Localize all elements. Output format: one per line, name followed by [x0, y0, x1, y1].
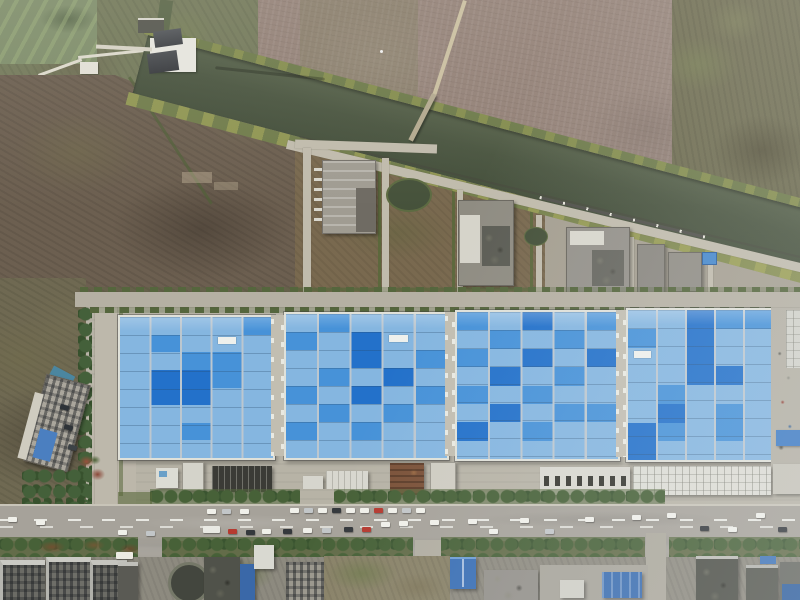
dark-block: [696, 556, 738, 600]
car: [430, 520, 439, 525]
roof-panel: [181, 352, 212, 370]
roof-panel: [383, 368, 415, 386]
algae-pond: [0, 0, 97, 64]
rooftop-unit: [634, 351, 651, 359]
building-c-equipment: [592, 250, 624, 286]
car: [362, 527, 371, 532]
roof-panel: [657, 423, 686, 442]
parked-car: [416, 508, 425, 513]
plot-path: [303, 148, 311, 295]
utility-pond-small: [524, 227, 548, 246]
apartment-block: [46, 557, 91, 600]
road-curb: [0, 504, 800, 506]
car: [8, 517, 17, 522]
parked-car: [318, 508, 327, 513]
apartment-tower: [118, 562, 138, 600]
vent-row: [544, 476, 626, 486]
plot-path: [382, 158, 389, 295]
factory-hall-3: [455, 310, 620, 461]
roof-panel: [521, 386, 553, 404]
roof-panel: [715, 310, 744, 329]
roof-panel: [212, 370, 243, 388]
roof-panel: [521, 349, 553, 367]
gray-building: [484, 570, 538, 600]
roof-panel: [686, 310, 715, 329]
parked-car: [332, 508, 341, 513]
car: [303, 528, 312, 533]
parked-car: [64, 424, 74, 431]
roof-panel: [457, 349, 489, 367]
open-lot: [324, 556, 450, 600]
parked-car: [290, 508, 299, 513]
roof-panel: [686, 366, 715, 385]
blue-tank: [702, 252, 717, 265]
car: [667, 513, 676, 518]
field-mark: [182, 172, 212, 183]
car: [146, 531, 155, 536]
parked-car: [360, 508, 369, 513]
car: [632, 515, 641, 520]
driveway-gap: [138, 537, 162, 559]
north-road-hedge: [80, 287, 800, 292]
dark-roof-building: [204, 557, 240, 600]
rooftop-unit: [218, 337, 236, 344]
hall-gap: [445, 312, 455, 456]
roof-panel: [350, 332, 382, 350]
roof-panel: [628, 423, 657, 442]
plot-hedge: [452, 184, 455, 293]
factory-hall-4: [626, 308, 775, 462]
walker-dot: [380, 50, 383, 53]
car: [520, 518, 529, 523]
roof-panel: [657, 385, 686, 404]
roof-panel: [286, 422, 318, 440]
car: [700, 526, 709, 531]
utility-pond: [386, 178, 432, 212]
car: [778, 527, 787, 532]
car: [322, 528, 331, 533]
roof-panel: [686, 348, 715, 367]
car: [118, 530, 127, 535]
factory-north-road: [75, 292, 800, 307]
factory-hall-2: [284, 312, 449, 460]
car: [228, 529, 237, 534]
lane-markings: [0, 526, 800, 528]
bus: [116, 552, 133, 559]
parked-car: [60, 404, 70, 411]
building-c-white-roof: [570, 231, 604, 245]
roof-panel: [715, 366, 744, 385]
treatment-building-a-annex: [356, 188, 376, 232]
east-building: [786, 310, 800, 368]
roof-panel: [151, 370, 182, 388]
hall-gap: [616, 310, 626, 457]
blue-roof-building: [450, 557, 476, 589]
car: [489, 529, 498, 534]
car: [728, 527, 737, 532]
white-shed-south: [254, 545, 274, 569]
roof-panel: [415, 386, 447, 404]
car: [381, 522, 390, 527]
plot-hedge: [530, 203, 533, 293]
car: [246, 530, 255, 535]
roof-panel: [628, 329, 657, 348]
roof-panel: [586, 404, 618, 422]
roof-panel: [181, 370, 212, 388]
roof-panel: [350, 422, 382, 440]
roof-panel: [586, 312, 618, 330]
car: [585, 517, 594, 522]
parked-car: [402, 508, 411, 513]
roof-panel: [242, 317, 273, 335]
roof-panel: [489, 330, 521, 348]
car: [399, 521, 408, 526]
parked-car: [388, 508, 397, 513]
office-cars: [58, 400, 78, 462]
roof-panel: [457, 386, 489, 404]
rooftop-unit: [389, 335, 408, 342]
building-b-court: [482, 226, 510, 266]
roof-panel: [181, 388, 212, 406]
roof-panel: [554, 330, 586, 348]
roof-panel: [286, 386, 318, 404]
gray-building: [286, 562, 324, 600]
white-building: [182, 462, 204, 491]
car: [262, 529, 271, 534]
dark-block: [746, 565, 778, 600]
white-unit: [560, 580, 584, 598]
apartment-block: [0, 560, 45, 600]
roof-panel: [151, 388, 182, 406]
roof-panel: [457, 422, 489, 440]
parked-car: [304, 508, 313, 513]
roof-panel: [318, 368, 350, 386]
south-driveway: [646, 533, 666, 600]
blue-roof-corner: [782, 584, 800, 600]
parked-car: [207, 509, 216, 514]
hall-gap: [271, 315, 284, 456]
car: [756, 513, 765, 518]
east-blue-canopy: [776, 430, 800, 446]
blue-panel: [760, 556, 776, 564]
roof-panel: [489, 367, 521, 385]
car: [283, 529, 292, 534]
shed-blue-item: [159, 471, 167, 477]
parked-car: [222, 509, 231, 514]
roof-panel: [318, 314, 350, 332]
car: [344, 527, 353, 532]
roof-panel: [350, 350, 382, 368]
building-a-walk: [314, 168, 322, 228]
roof-ridge: [462, 559, 464, 587]
roof-panel: [181, 423, 212, 441]
roof-panel: [151, 335, 182, 353]
roof-panel: [715, 423, 744, 442]
blue-containers: [602, 572, 642, 598]
roof-panel: [715, 404, 744, 423]
roof-panel: [415, 350, 447, 368]
car: [203, 526, 220, 533]
roof-panel: [489, 404, 521, 422]
roof-panel: [383, 404, 415, 422]
roof-panel: [318, 404, 350, 422]
plot-hedge: [378, 166, 381, 293]
roof-panel: [686, 329, 715, 348]
service-east-shed: [773, 464, 800, 494]
pond-dock: [80, 62, 98, 74]
treatment-building-e: [668, 252, 702, 292]
car: [468, 519, 477, 524]
aerial-photo: [0, 0, 800, 600]
parked-car: [68, 444, 78, 451]
roof-panel: [286, 332, 318, 350]
roof-panel: [212, 352, 243, 370]
car: [36, 520, 45, 525]
roof-panel: [586, 349, 618, 367]
car: [545, 529, 554, 534]
factory-hall-1: [118, 315, 275, 460]
parked-car: [240, 509, 249, 514]
roof-panel: [554, 367, 586, 385]
roof-panel: [521, 312, 553, 330]
pump-station-roof: [147, 50, 179, 74]
roof-panel: [744, 310, 773, 329]
parked-car: [374, 508, 383, 513]
building-b-white-roof: [460, 215, 480, 263]
roof-panel: [521, 422, 553, 440]
field-mark: [214, 182, 238, 190]
roof-panel: [554, 404, 586, 422]
roof-panel: [457, 312, 489, 330]
roof-panel: [657, 404, 686, 423]
roof-panel: [350, 386, 382, 404]
parked-car: [346, 508, 355, 513]
blue-building: [240, 564, 255, 600]
